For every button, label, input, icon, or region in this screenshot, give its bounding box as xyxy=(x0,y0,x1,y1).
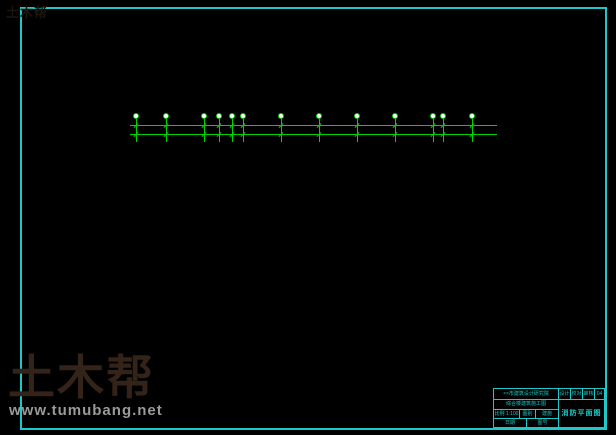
title-block: ××市建筑设计研究院 综合楼建筑施工图 比例 1:100 图别 建施 日期 图号… xyxy=(493,388,605,428)
tb-drawing-title: 消防平面图 xyxy=(559,399,604,427)
tb-top-cell-4: 04 xyxy=(595,389,604,399)
axis-bubble-top xyxy=(469,113,475,119)
watermark-logo: 土木帮 xyxy=(8,354,155,401)
axis-bubble-top xyxy=(278,113,284,119)
tb-project-name: 综合楼建筑施工图 xyxy=(494,399,558,409)
axis-bubble-top xyxy=(440,113,446,119)
axis-bubble-top xyxy=(201,113,207,119)
tb-design-org: ××市建筑设计研究院 xyxy=(494,389,558,399)
axis-bubble-top xyxy=(392,113,398,119)
axis-bubble-top xyxy=(163,113,169,119)
axis-bubble-top xyxy=(216,113,222,119)
tb-number-cell: 图号 xyxy=(527,418,558,428)
axis-bubble-top xyxy=(133,113,139,119)
tb-top-cell-1: 设计 xyxy=(559,389,570,399)
axis-bubble-top xyxy=(354,113,360,119)
axis-bubble-top xyxy=(316,113,322,119)
tb-date-cell: 日期 xyxy=(494,418,526,428)
axis-bubble-top xyxy=(240,113,246,119)
cad-sheet: 土木帮 土木帮 www.tumubang.net ××市建筑设计研究院 综合楼建… xyxy=(0,0,616,435)
axis-bubble-top xyxy=(229,113,235,119)
watermark-url: www.tumubang.net xyxy=(9,403,163,418)
tb-top-cell-2: 校对 xyxy=(571,389,582,399)
axis-bubble-top xyxy=(430,113,436,119)
tb-top-cell-3: 审核 xyxy=(583,389,594,399)
